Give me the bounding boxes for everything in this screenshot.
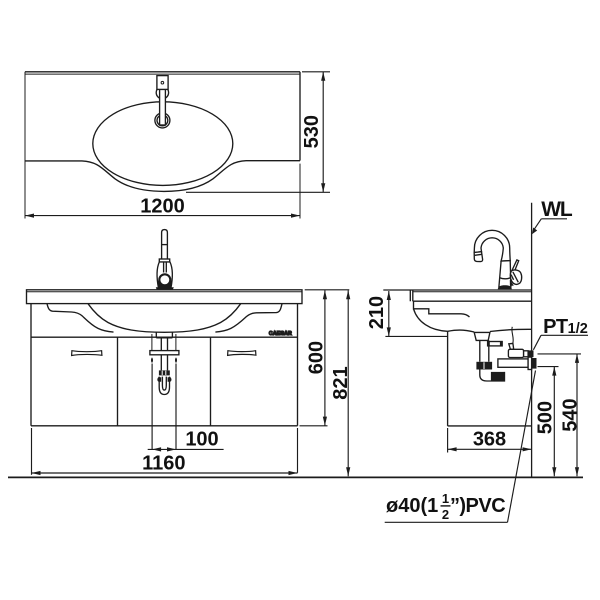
svg-text:)PVC: )PVC	[459, 495, 505, 517]
svg-text:2: 2	[442, 507, 449, 522]
svg-text:100: 100	[185, 429, 218, 451]
svg-text:WL: WL	[541, 198, 573, 221]
svg-text:530: 530	[301, 115, 323, 148]
svg-text:1200: 1200	[140, 196, 185, 218]
svg-text:540: 540	[560, 398, 582, 431]
svg-text:368: 368	[473, 428, 506, 450]
svg-text:1: 1	[442, 491, 449, 506]
svg-text:600: 600	[306, 341, 328, 374]
svg-text:ø40(1: ø40(1	[386, 495, 438, 517]
svg-text:210: 210	[366, 296, 388, 329]
svg-text:821: 821	[330, 366, 352, 399]
svg-text:CAESAR: CAESAR	[269, 331, 292, 337]
svg-text:1160: 1160	[142, 453, 185, 475]
svg-text:500: 500	[535, 401, 557, 434]
